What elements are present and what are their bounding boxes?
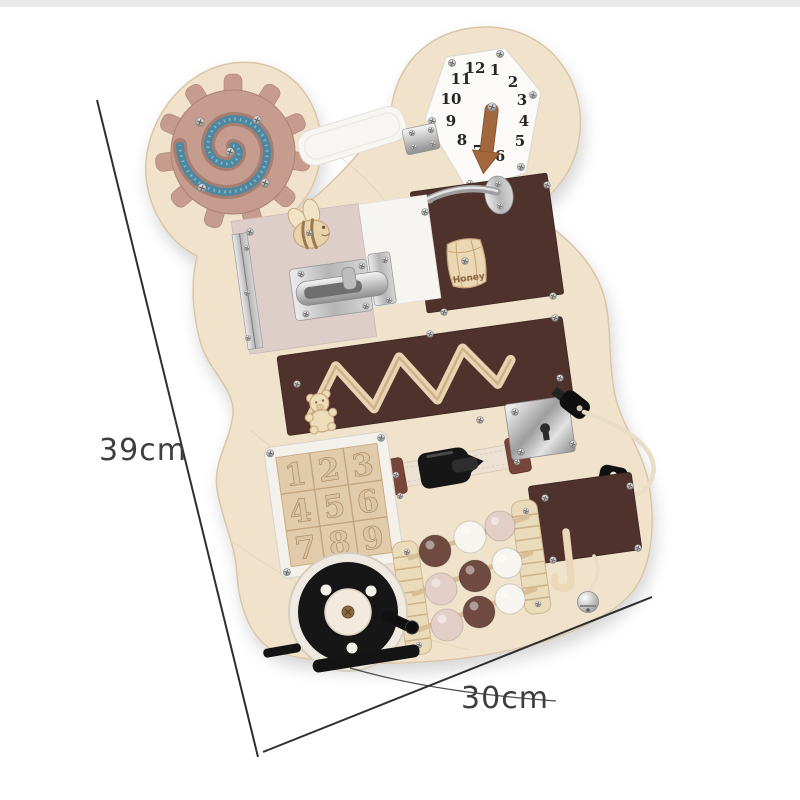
screw-icon <box>244 290 249 295</box>
bead <box>419 535 451 567</box>
bead <box>459 560 491 592</box>
screw-icon <box>557 375 564 382</box>
bead <box>485 511 515 541</box>
screw-icon <box>306 230 312 236</box>
screw-icon <box>544 182 551 189</box>
clock-number: 3 <box>517 91 527 109</box>
screw-icon <box>427 331 434 338</box>
screw-icon <box>496 50 503 57</box>
clock-number: 11 <box>451 70 472 88</box>
screw-icon <box>363 303 369 309</box>
width-label: 30cm <box>461 681 549 716</box>
screw-icon <box>303 311 309 317</box>
screw-icon <box>517 163 524 170</box>
screw-icon <box>428 127 434 133</box>
screw-icon <box>535 601 541 607</box>
screw-icon <box>198 184 206 192</box>
screw-icon <box>635 545 642 552</box>
screw-icon <box>462 258 469 265</box>
screw-icon <box>495 181 501 187</box>
screw-icon <box>397 493 403 499</box>
puzzle-numbers: 1 2 3 4 5 6 7 8 9 <box>282 446 386 567</box>
bead <box>463 596 495 628</box>
screw-icon <box>523 508 529 514</box>
screw-icon <box>529 91 536 98</box>
screw-icon <box>247 229 254 236</box>
screw-icon <box>570 441 577 448</box>
clock-number: 9 <box>446 112 456 130</box>
clock-number: 2 <box>508 73 518 91</box>
screw-icon <box>382 257 388 263</box>
screw-icon <box>430 141 436 147</box>
photo-edge-artifact <box>0 0 800 7</box>
screw-icon <box>298 271 304 277</box>
clock-number: 4 <box>519 112 529 130</box>
bead <box>454 521 486 553</box>
bead <box>431 609 463 641</box>
busy-board-scene: 12 1 2 3 4 5 6 7 8 9 10 11 <box>0 0 800 800</box>
screw-icon <box>542 495 549 502</box>
screw-icon <box>448 59 455 66</box>
screw-icon <box>627 483 634 490</box>
screw-icon <box>409 130 415 136</box>
screw-icon <box>422 209 429 216</box>
screw-icon <box>512 409 519 416</box>
clock-number: 5 <box>515 132 525 150</box>
screw-icon <box>441 309 448 316</box>
screw-icon <box>518 449 525 456</box>
screw-icon <box>552 315 559 322</box>
product-photo: 12 1 2 3 4 5 6 7 8 9 10 11 <box>0 0 800 800</box>
bead <box>425 573 457 605</box>
screw-icon <box>196 118 204 126</box>
screw-icon <box>253 116 261 124</box>
screw-icon <box>550 293 557 300</box>
screw-icon <box>550 557 557 564</box>
screw-icon <box>386 297 392 303</box>
screw-icon <box>477 417 484 424</box>
screw-icon <box>294 381 301 388</box>
screw-icon <box>488 103 496 111</box>
screw-icon <box>411 144 417 150</box>
screw-icon <box>245 335 250 340</box>
screw-icon <box>261 179 269 187</box>
screw-icon <box>359 263 365 269</box>
clock-number: 10 <box>441 90 462 108</box>
height-label: 39cm <box>99 433 187 468</box>
clock-number: 8 <box>457 131 467 149</box>
bead <box>495 584 525 614</box>
screw-icon <box>226 148 234 156</box>
bead <box>492 548 522 578</box>
screw-icon <box>393 472 399 478</box>
screw-icon <box>404 549 410 555</box>
clock-number: 1 <box>490 61 500 79</box>
screw-icon <box>497 203 503 209</box>
bell <box>578 592 599 613</box>
screw-icon <box>244 245 249 250</box>
